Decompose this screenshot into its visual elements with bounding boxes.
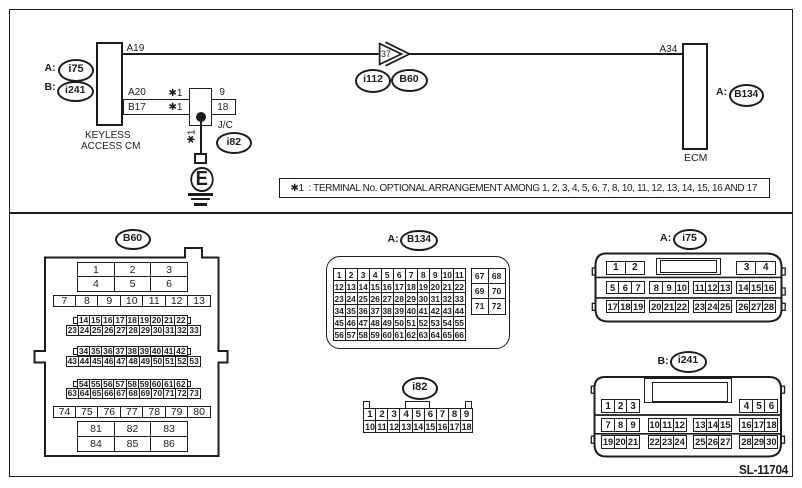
- svg-text:37: 37: [381, 49, 391, 59]
